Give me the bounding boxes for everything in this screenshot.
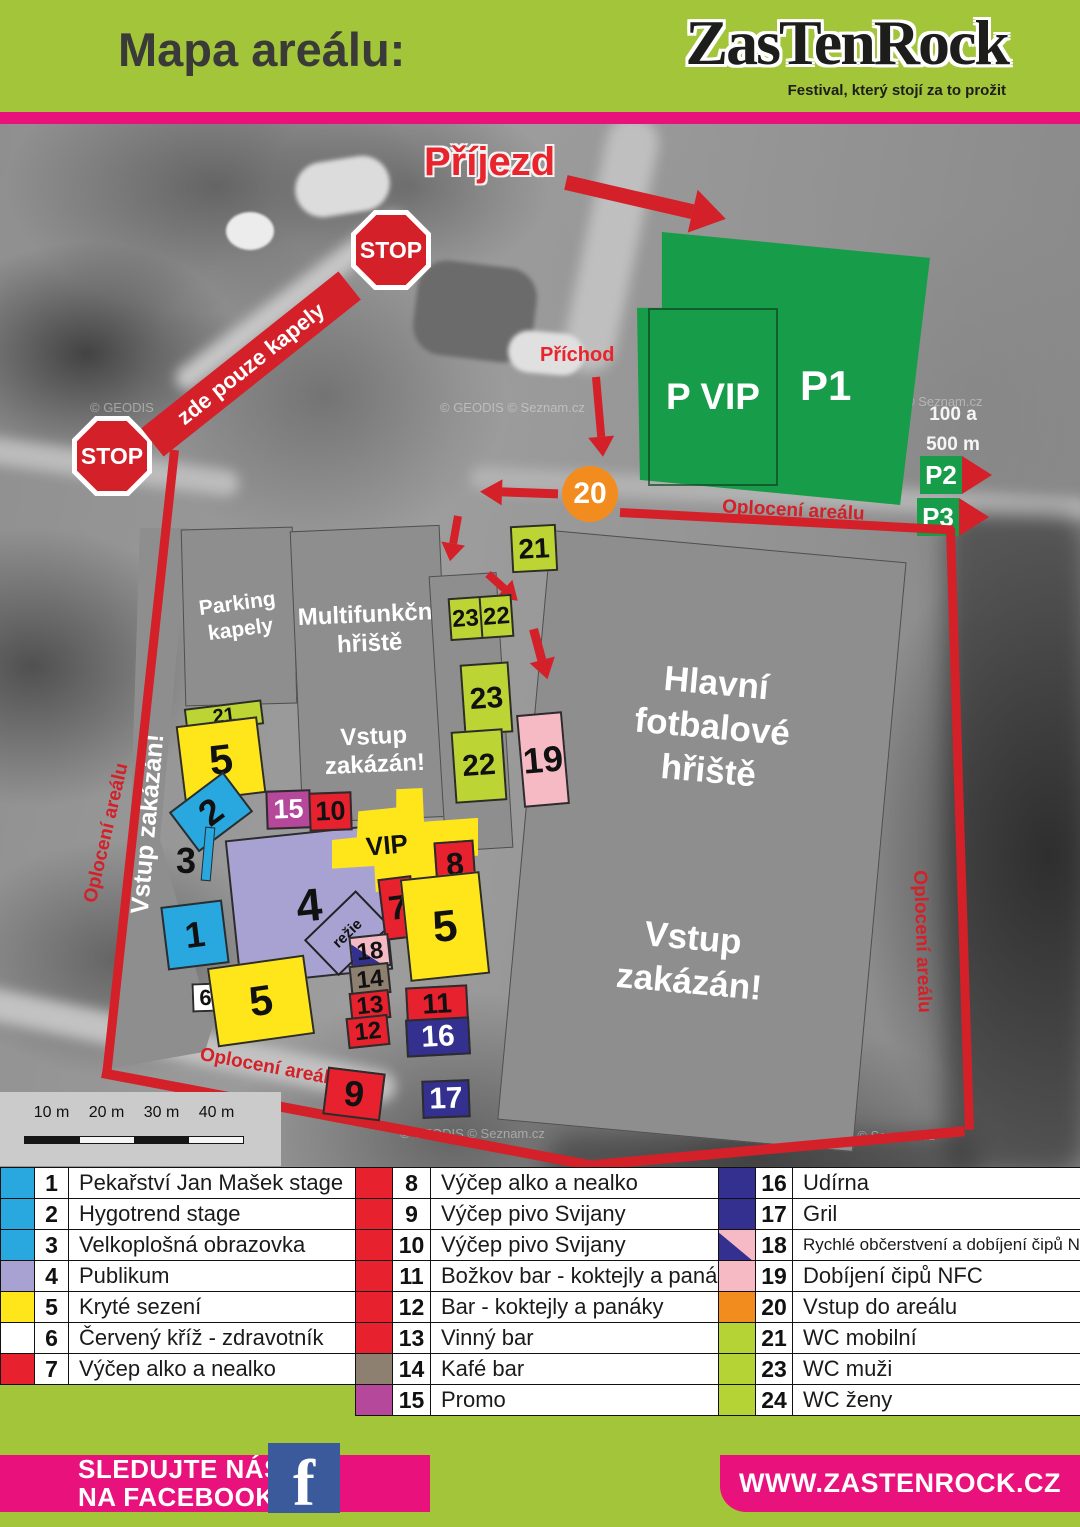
legend-number: 17 [755,1198,793,1230]
marker-wc-21: 21 [510,524,558,573]
distance-note: 100 a 500 m [903,400,1003,461]
bands-only-banner: zde pouze kapely [141,271,361,456]
legend-row: 11Božkov bar - koktejly a panáky [355,1260,732,1292]
legend-number: 13 [392,1322,431,1354]
legend-label: Kafé bar [430,1353,732,1385]
no-entry-label: Vstup zakázán! [573,906,810,1014]
no-entry-label: Vstup zakázán! [299,719,449,783]
legend-label: Výčep pivo Svijany [430,1198,732,1230]
legend-row: 15Promo [355,1384,732,1416]
legend-row: 4Publikum [0,1260,382,1292]
facebook-banner[interactable]: SLEDUJTE NÁS NA FACEBOOKU [0,1455,430,1512]
marker-grill-17: 17 [421,1079,470,1119]
marker-wc-22: 22 [451,728,508,803]
marker-nfc-19: 19 [516,711,570,808]
legend-column-3: 16Udírna17Gril18Rychlé občerstvení a dob… [718,1168,1080,1416]
legend-color-chip [355,1229,393,1261]
parking-vip: P VIP [648,308,778,486]
legend-row: 14Kafé bar [355,1353,732,1385]
marker-bar-12: 12 [345,1014,390,1049]
legend-color-chip [355,1353,393,1385]
marker-seating-5: 5 [207,955,315,1048]
legend-row: 6Červený kříž - zdravotník [0,1322,382,1354]
main-pitch-label: Hlavní fotbalové hřiště [587,651,838,803]
legend-label: Pekařství Jan Mašek stage [68,1167,382,1199]
marker-screen-3-label: 3 [176,840,196,882]
legend-label: Bar - koktejly a panáky [430,1291,732,1323]
legend-label: Hygotrend stage [68,1198,382,1230]
legend-number: 12 [392,1291,431,1323]
legend-color-chip [718,1384,756,1416]
marker-tap-10: 10 [308,791,352,831]
legend-color-chip [355,1384,393,1416]
legend-label: WC mobilní [792,1322,1080,1354]
legend-color-chip [718,1198,756,1230]
legend-row: 13Vinný bar [355,1322,732,1354]
festival-map-poster: Mapa areálu: ZasTenRock Festival, který … [0,0,1080,1527]
legend-color-chip [0,1353,35,1385]
facebook-icon[interactable]: f [268,1443,340,1513]
legend-label: Rychlé občerstvení a dobíjení čipů NFC [792,1229,1080,1261]
legend-number: 19 [755,1260,793,1292]
watermark: © GEODIS [90,400,154,415]
legend-number: 23 [755,1353,793,1385]
legend-label: WC ženy [792,1384,1080,1416]
legend-row: 1Pekařství Jan Mašek stage [0,1167,382,1199]
website-url: WWW.ZASTENROCK.CZ [739,1468,1061,1499]
multi-pitch-label: Multifunkční hřiště [294,598,444,662]
legend-color-chip [0,1260,35,1292]
legend-row: 7Výčep alko a nealko [0,1353,382,1385]
legend-number: 18 [755,1229,793,1261]
legend-row: 16Udírna [718,1167,1080,1199]
parking-p1-label: P1 [800,362,851,410]
legend-column-1: 1Pekařství Jan Mašek stage2Hygotrend sta… [0,1168,382,1385]
festival-tagline: Festival, který stojí za to prožit [788,82,1006,99]
legend-number: 24 [755,1384,793,1416]
website-banner[interactable]: WWW.ZASTENROCK.CZ [720,1455,1080,1512]
marker-entrance-20: 20 [562,466,618,522]
map-scale: 10 m 20 m 30 m 40 m [0,1092,281,1166]
legend-label: Publikum [68,1260,382,1292]
marker-stage-1: 1 [160,899,229,970]
legend-number: 8 [392,1167,431,1199]
legend-label: Vinný bar [430,1322,732,1354]
scale-bar [24,1136,244,1144]
legend-number: 15 [392,1384,431,1416]
legend-row: 9Výčep pivo Svijany [355,1198,732,1230]
legend-number: 1 [34,1167,69,1199]
legend-label: Promo [430,1384,732,1416]
arrival-label: Příjezd [424,140,555,185]
legend-color-chip [718,1353,756,1385]
scale-labels: 10 m 20 m 30 m 40 m [24,1104,256,1122]
legend-color-chip [718,1322,756,1354]
legend-number: 10 [392,1229,431,1261]
zone-main-pitch: Hlavní fotbalové hřiště Vstup zakázán! [497,530,906,1152]
festival-logo: ZasTenRock [685,6,1008,80]
watermark: © GEODIS © Seznam.cz [440,400,585,415]
legend-row: 2Hygotrend stage [0,1198,382,1230]
legend-number: 9 [392,1198,431,1230]
legend-color-chip [0,1322,35,1354]
marker-wc-23-22: 23 22 [448,594,515,641]
legend-row: 12Bar - koktejly a panáky [355,1291,732,1323]
vip-label: VIP [365,828,409,863]
stop-sign: STOP [351,210,431,290]
legend-row: 23WC muži [718,1353,1080,1385]
legend-color-chip [355,1291,393,1323]
legend-number: 6 [34,1322,69,1354]
legend-row: 8Výčep alko a nealko [355,1167,732,1199]
legend-label: WC muži [792,1353,1080,1385]
zone-multi-pitch: Multifunkční hřiště Vstup zakázán! [290,525,453,823]
legend-label: Velkoplošná obrazovka [68,1229,382,1261]
legend-column-2: 8Výčep alko a nealko9Výčep pivo Svijany1… [355,1168,732,1416]
legend-color-chip [718,1291,756,1323]
legend-label: Vstup do areálu [792,1291,1080,1323]
approach-arrow-icon [583,376,616,458]
legend-label: Výčep alko a nealko [68,1353,382,1385]
legend-color-chip [718,1260,756,1292]
legend-label: Gril [792,1198,1080,1230]
band-parking-label: Parking kapely [181,584,297,650]
legend-row: 20Vstup do areálu [718,1291,1080,1323]
zone-band-parking: Parking kapely [181,527,298,707]
legend-label: Červený kříž - zdravotník [68,1322,382,1354]
legend-label: Kryté sezení [68,1291,382,1323]
legend-color-chip [355,1167,393,1199]
legend-number: 7 [34,1353,69,1385]
legend-number: 16 [755,1167,793,1199]
legend-number: 11 [392,1260,431,1292]
legend-color-chip [718,1167,756,1199]
legend-label: Dobíjení čipů NFC [792,1260,1080,1292]
legend-label: Výčep pivo Svijany [430,1229,732,1261]
legend-color-chip [0,1229,35,1261]
legend-number: 2 [34,1198,69,1230]
entry-arrow-icon [480,479,559,508]
marker-seating-5: 5 [400,871,490,982]
pool [226,212,274,250]
legend-label: Božkov bar - koktejly a panáky [430,1260,732,1292]
arrow-right-icon [962,456,992,494]
legend-number: 5 [34,1291,69,1323]
marker-tap-9: 9 [322,1067,385,1122]
legend-row: 3Velkoplošná obrazovka [0,1229,382,1261]
parking-p2-sign: P2 [920,456,992,494]
legend-label: Udírna [792,1167,1080,1199]
header: Mapa areálu: ZasTenRock Festival, který … [0,0,1080,112]
legend-row: 19Dobíjení čipů NFC [718,1260,1080,1292]
legend-color-chip [0,1167,35,1199]
legend-row: 21WC mobilní [718,1322,1080,1354]
legend-number: 3 [34,1229,69,1261]
legend-row: 17Gril [718,1198,1080,1230]
fence-label: Oplocení areálu [908,870,935,1013]
legend-number: 21 [755,1322,793,1354]
approach-label: Příchod [540,344,614,367]
legend-color-chip [0,1291,35,1323]
legend-color-chip [355,1198,393,1230]
marker-promo-15: 15 [265,789,311,830]
legend-row: 5Kryté sezení [0,1291,382,1323]
legend-color-chip [355,1322,393,1354]
legend-number: 20 [755,1291,793,1323]
arrow-right-icon [959,498,989,536]
area-map: © GEODIS © GEODIS © Seznam.cz © Seznam.c… [0,124,1080,1168]
legend-row: 10Výčep pivo Svijany [355,1229,732,1261]
legend-color-chip [718,1229,756,1261]
legend-number: 4 [34,1260,69,1292]
parking-vip-label: P VIP [666,376,760,419]
legend-label: Výčep alko a nealko [430,1167,732,1199]
legend-color-chip [0,1198,35,1230]
page-title: Mapa areálu: [118,22,405,77]
marker-smokehouse-16: 16 [405,1016,471,1057]
legend-row: 18Rychlé občerstvení a dobíjení čipů NFC [718,1229,1080,1261]
legend-color-chip [355,1260,393,1292]
legend-row: 24WC ženy [718,1384,1080,1416]
legend-number: 14 [392,1353,431,1385]
marker-wc-23: 23 [460,661,514,735]
path-arrow-icon [438,514,470,563]
